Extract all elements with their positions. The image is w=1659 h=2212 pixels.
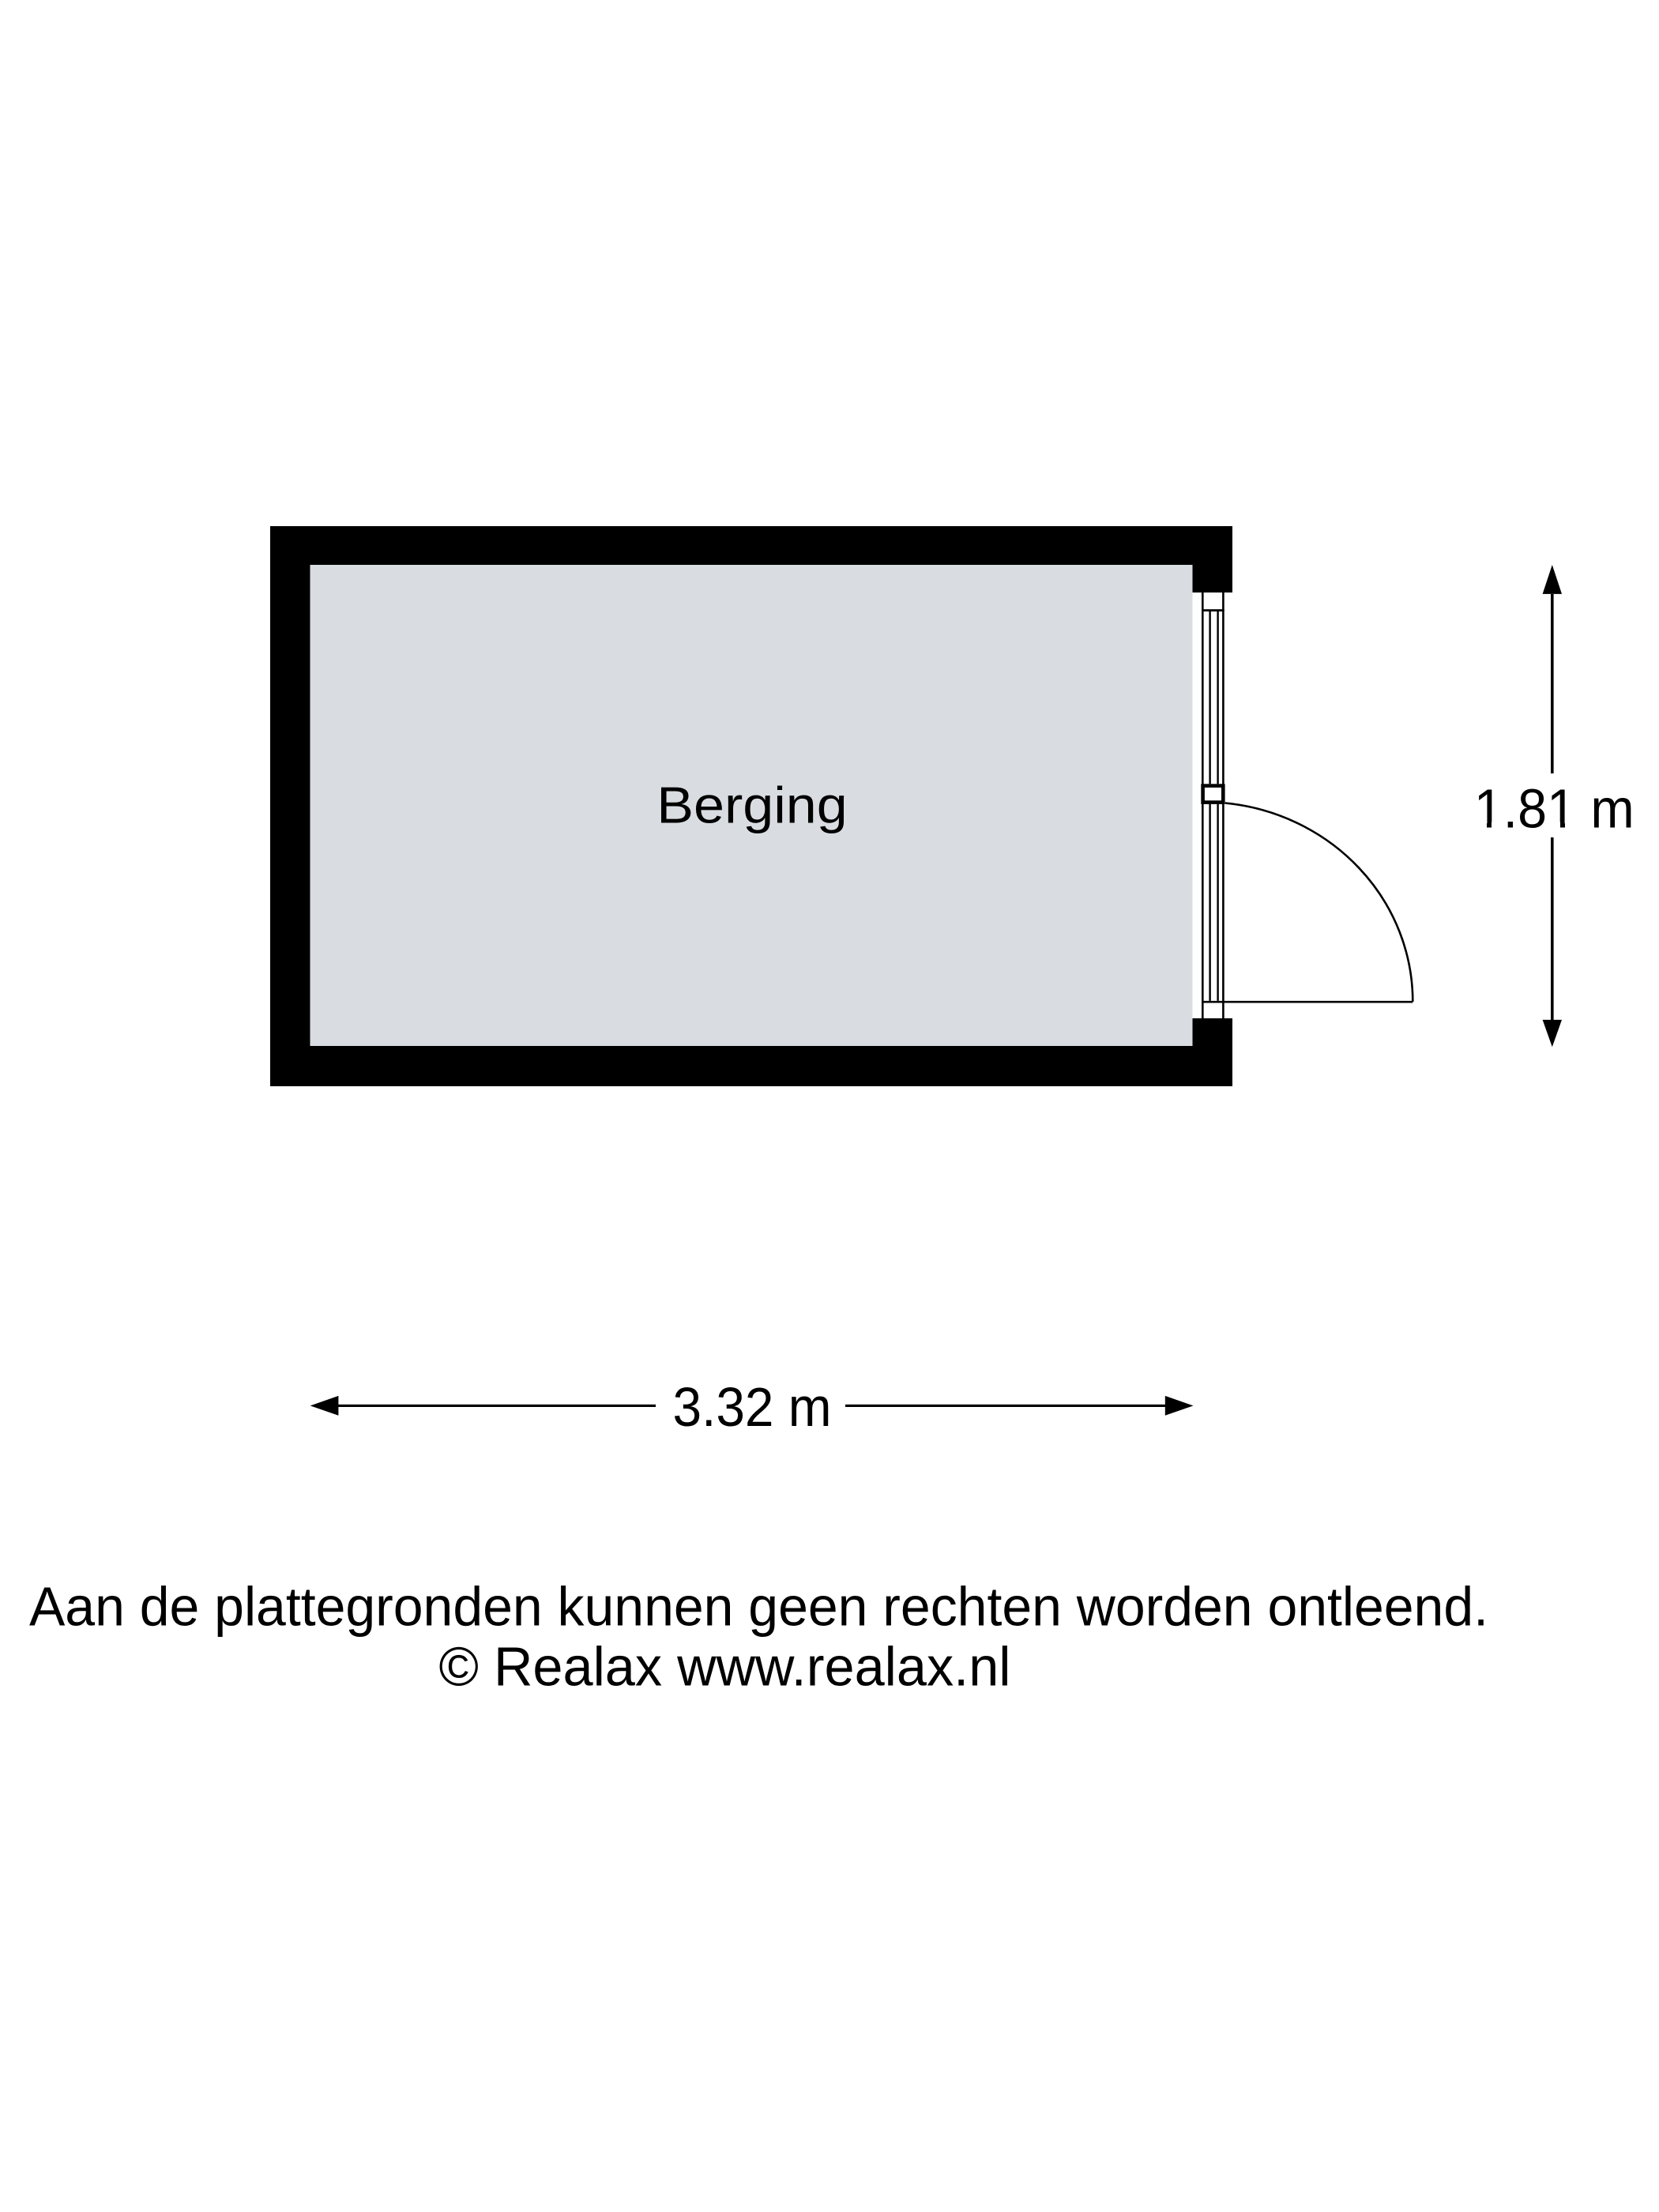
svg-text:3.32 m: 3.32 m xyxy=(673,1376,832,1438)
svg-text:1.81 m: 1.81 m xyxy=(1474,777,1635,839)
svg-text:Berging: Berging xyxy=(656,777,848,834)
svg-text:Aan de plattegronden kunnen ge: Aan de plattegronden kunnen geen rechten… xyxy=(29,1576,1488,1638)
svg-text:© Realax www.realax.nl: © Realax www.realax.nl xyxy=(439,1636,1011,1698)
